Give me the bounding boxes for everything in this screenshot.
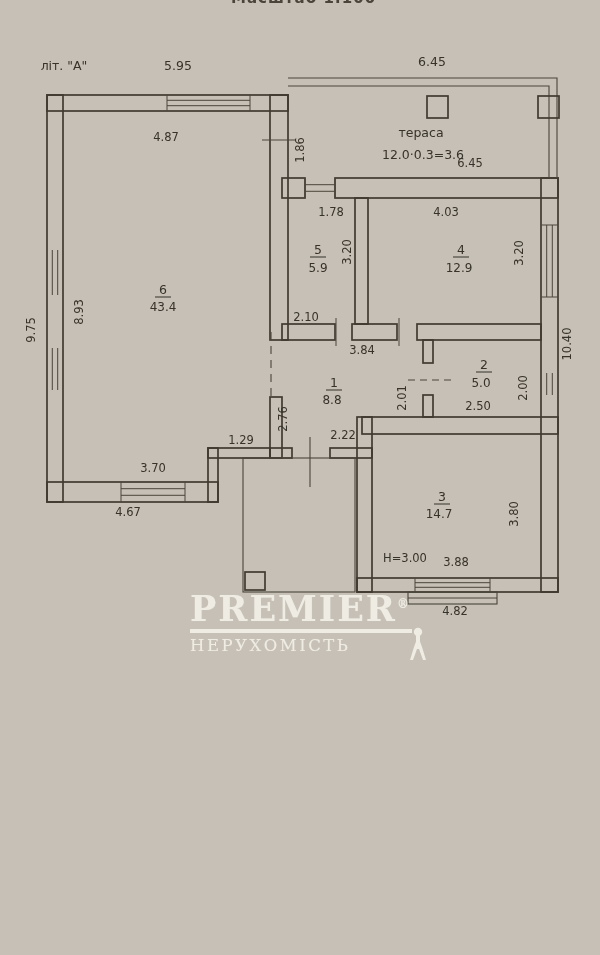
room4-number: 4 [457,242,465,257]
dim-room5-width: 1.78 [318,205,344,219]
floor-plan-drawing: 6 43.4 5 5.9 4 12.9 1 8.8 2 5.0 3 14.7 т… [0,0,600,955]
watermark-divider [190,629,412,633]
room6-number: 6 [159,282,167,297]
dim-outer-bottom-left: 4.67 [115,505,141,519]
dim-room6-width: 4.87 [153,130,179,144]
dim-room6-bottom: 3.70 [140,461,166,475]
room5-number: 5 [314,242,322,257]
room5-area: 5.9 [308,261,327,275]
dim-room2-height: 2.00 [516,375,530,401]
terrace-area-formula: 12.0·0.3=3.6 [382,147,464,162]
room3-number: 3 [438,489,446,504]
height-note: Н=3.00 [383,551,427,565]
terrace-column [427,96,448,118]
dim-outer-left: 9.75 [24,317,38,343]
room4-area: 12.9 [446,261,473,275]
dim-room4-width: 4.03 [433,205,459,219]
dim-terrace-width-inner: 6.45 [457,156,483,170]
dim-outer-bottom-right: 4.82 [442,604,468,618]
floor-plan-photo: Масштаб 1:100 [0,0,600,955]
room3-area: 14.7 [426,507,453,521]
dim-hall-bottom: 2.22 [330,428,356,442]
dim-outer-right: 10.40 [560,328,574,361]
dim-hall-top: 3.84 [349,343,375,357]
dim-terrace-depth: 1.86 [293,137,307,163]
porch-outline [243,458,497,604]
person-icon [403,627,433,661]
dimension-labels: літ. "А" 5.95 6.45 6.45 1.86 1.78 3.20 2… [24,54,574,618]
room1-number: 1 [330,375,338,390]
dim-room4-depth: 3.20 [512,240,526,266]
terrace-label: тераса [398,125,443,140]
room1-area: 8.8 [322,393,341,407]
room6-area: 43.4 [150,300,177,314]
dim-room5-depth: 3.20 [340,239,354,265]
building-label: літ. "А" [41,58,88,73]
dim-room3-bottom: 3.88 [443,555,469,569]
dim-room3-height: 3.80 [507,501,521,527]
room2-number: 2 [480,357,488,372]
dim-room6-height: 8.93 [72,299,86,325]
dim-hall-left: 2.76 [276,406,290,432]
agency-watermark: PREMIER® НЕРУХОМІСТЬ [190,587,425,655]
room2-area: 5.0 [471,376,490,390]
dim-top-width-terrace: 6.45 [418,54,446,69]
dim-room2-bottom: 2.50 [465,399,491,413]
dim-hall-door: 2.01 [395,385,409,411]
dim-top-width-left: 5.95 [164,58,192,73]
dim-room5-bottom: 2.10 [293,310,319,324]
watermark-subtitle: НЕРУХОМІСТЬ [190,636,425,655]
registered-mark: ® [397,597,409,611]
watermark-brand: PREMIER® [190,587,425,626]
watermark-brand-text: PREMIER [190,588,397,629]
dim-step: 1.29 [228,433,254,447]
